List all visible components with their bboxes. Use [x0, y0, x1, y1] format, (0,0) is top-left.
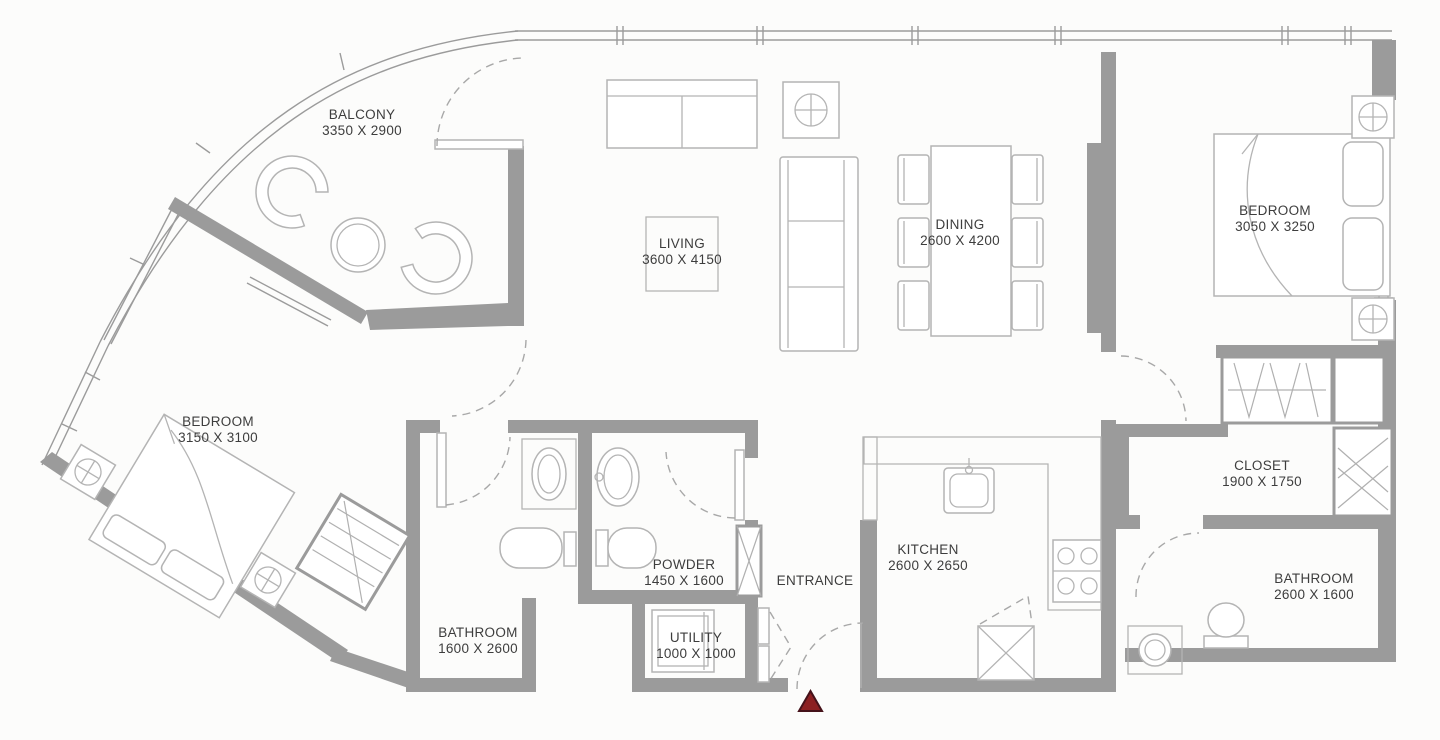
room-label-closet: CLOSET1900 X 1750 — [1222, 458, 1302, 490]
room-label-entrance: ENTRANCE — [777, 573, 854, 589]
entrance-door — [797, 623, 863, 689]
balcony-round-table — [331, 218, 385, 272]
bedroom-wardrobe — [297, 494, 410, 609]
window-wall-top — [515, 26, 1392, 45]
room-label-bedroom-right: BEDROOM3050 X 3250 — [1235, 203, 1315, 235]
room-label-powder: POWDER1450 X 1600 — [644, 557, 724, 589]
bedroom-left-door — [452, 340, 526, 416]
room-label-bedroom-left: BEDROOM3150 X 3100 — [178, 414, 258, 446]
bathroom-right-door — [1136, 533, 1199, 597]
nightstand-lamp — [1352, 298, 1394, 340]
room-label-dining: DINING2600 X 4200 — [920, 217, 1000, 249]
closet-door — [1121, 356, 1186, 421]
room-label-bathroom-left: BATHROOM1600 X 2600 — [438, 625, 518, 657]
kitchen-sink — [944, 458, 994, 513]
balcony-door — [435, 58, 523, 149]
closet-shelf — [1334, 357, 1384, 423]
room-label-utility: UTILITY1000 X 1000 — [656, 630, 736, 662]
powder-sink — [595, 448, 639, 506]
service-shaft — [737, 526, 761, 596]
bathroom-left-door — [437, 433, 510, 507]
floor-plan: BALCONY3350 X 2900 LIVING3600 X 4150 DIN… — [0, 0, 1440, 740]
balcony-lounge-chair — [242, 142, 337, 239]
sofa — [780, 157, 858, 351]
entrance-marker-icon — [799, 691, 822, 711]
balcony-curved-glass-wall — [100, 31, 518, 346]
bathroom-toilet — [1204, 603, 1248, 648]
nightstand-lamp — [1352, 96, 1394, 138]
window-wall-bedroom-left — [42, 342, 108, 468]
room-label-kitchen: KITCHEN2600 X 2650 — [888, 542, 968, 574]
balcony-lounge-chair — [396, 214, 482, 304]
corridor-wardrobe — [1222, 357, 1332, 423]
room-label-bathroom-right: BATHROOM2600 X 1600 — [1274, 571, 1354, 603]
room-label-living: LIVING3600 X 4150 — [642, 236, 722, 268]
hall-closet-bifold-doors — [758, 608, 791, 682]
refrigerator — [978, 596, 1034, 680]
closet-wardrobe — [1334, 428, 1392, 516]
room-label-balcony: BALCONY3350 X 2900 — [322, 107, 402, 139]
side-table-lamp — [783, 82, 839, 138]
bathroom-sink — [522, 439, 576, 509]
tv-console — [607, 80, 757, 148]
floor-plan-canvas — [0, 0, 1440, 740]
bathroom-toilet — [500, 528, 576, 568]
powder-door — [666, 450, 744, 520]
stove — [1053, 540, 1101, 602]
